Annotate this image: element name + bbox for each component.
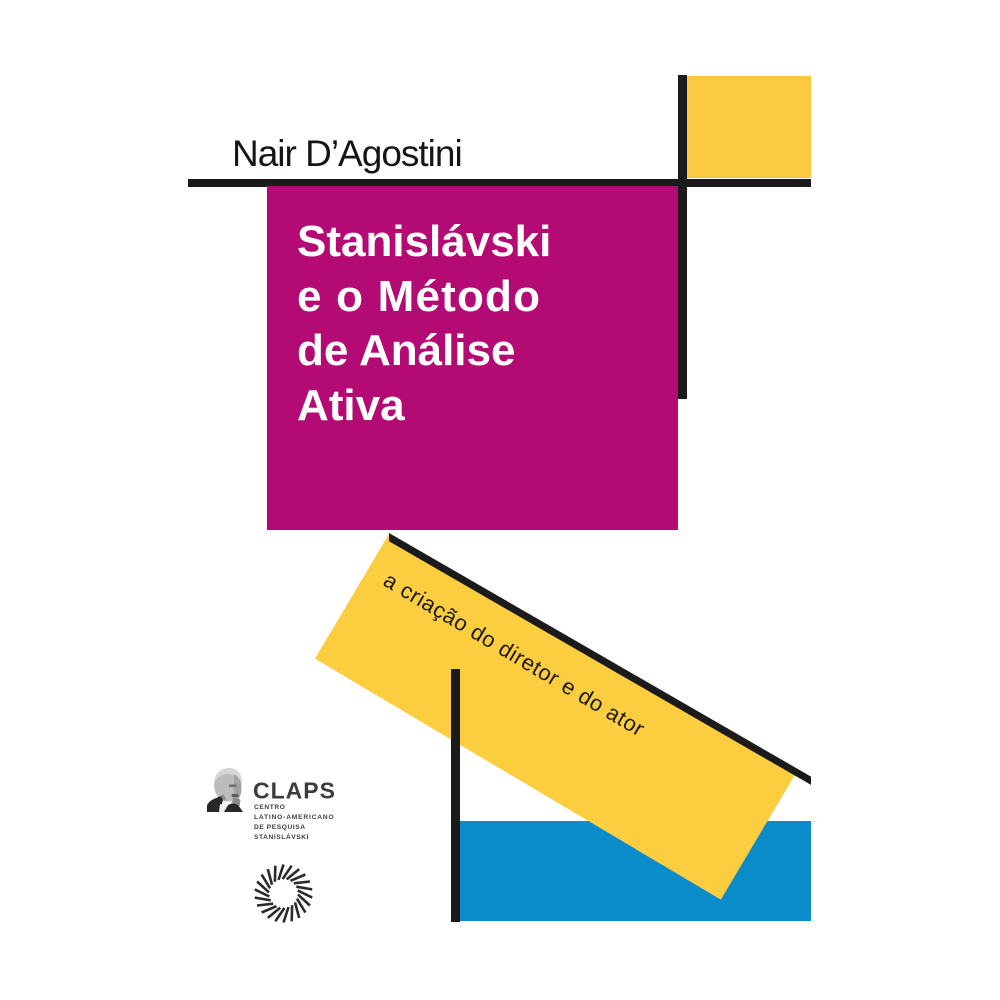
svg-text:DE PESQUISA: DE PESQUISA (254, 824, 306, 831)
svg-text:STANISLÁVSKI: STANISLÁVSKI (254, 832, 309, 841)
svg-text:LATINO-AMERICANO: LATINO-AMERICANO (254, 814, 335, 821)
svg-text:CENTRO: CENTRO (254, 804, 285, 811)
svg-text:CLAPS: CLAPS (253, 778, 336, 804)
